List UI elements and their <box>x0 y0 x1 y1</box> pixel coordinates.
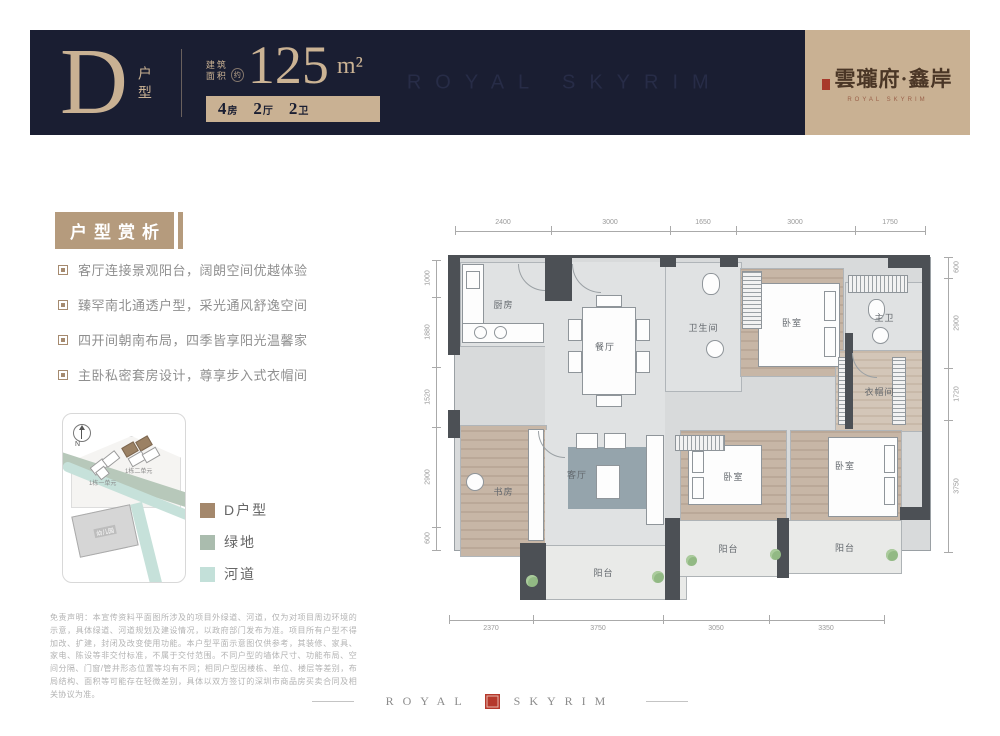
wall-top <box>455 255 930 258</box>
dining-chair <box>596 295 622 307</box>
square-bullet-icon <box>58 300 68 310</box>
dim-top-4: 3000 <box>787 219 803 226</box>
north-compass-icon <box>73 424 91 442</box>
wall-corner-br <box>900 507 930 520</box>
dim-right-2: 2900 <box>954 315 961 331</box>
wall-pillar <box>545 255 572 301</box>
dim-bottom-2: 3750 <box>590 625 606 632</box>
square-bullet-icon <box>58 265 68 275</box>
dim-left-2: 1880 <box>425 324 432 340</box>
bedroom-mid-closet <box>675 435 725 451</box>
analysis-title: 户型赏析 <box>55 212 174 249</box>
dining-chair <box>596 395 622 407</box>
legend-item-green: 绿地 <box>200 532 268 552</box>
bullet-item: 主卧私密套房设计，尊享步入式衣帽间 <box>58 365 368 384</box>
header: D 户型 建筑 面积 约 125 m² 4房 2厅 2卫 <box>30 30 970 135</box>
plant <box>770 549 781 560</box>
dim-line-right <box>948 257 949 552</box>
bath-sink <box>706 340 724 358</box>
legend-swatch-river <box>200 567 215 582</box>
area-label-line1: 建筑 <box>206 60 228 71</box>
area-value: 125 <box>248 43 329 89</box>
stove-burner <box>474 326 487 339</box>
pillow <box>692 451 704 473</box>
brand-logo-block: 雲瓏府·鑫岸 ROYAL SKYRIM <box>805 30 970 135</box>
pillow <box>884 477 895 505</box>
armchair <box>576 433 598 449</box>
sofa <box>646 435 664 525</box>
dim-bottom-3: 3050 <box>708 625 724 632</box>
legend-label-d: D户型 <box>224 500 268 520</box>
header-navy-band: D 户型 建筑 面积 约 125 m² 4房 2厅 2卫 <box>30 30 805 135</box>
disclaimer-text: 免责声明：本宣传资料平面图所涉及的项目外绿道、河道，仅为对项目周边环境的示意，具… <box>50 612 357 702</box>
footer-word-left: ROYAL <box>386 694 471 709</box>
kitchen-sink <box>466 271 480 289</box>
analysis-bullets: 客厅连接景观阳台，阔朗空间优越体验 臻罕南北通透户型，采光通风舒逸空间 四开间朝… <box>58 260 368 400</box>
dim-line-left <box>436 260 437 550</box>
wall-pillar <box>720 255 738 267</box>
dim-line-bottom <box>449 620 885 621</box>
north-label: N <box>75 441 80 448</box>
dim-bottom-4: 3350 <box>818 625 834 632</box>
balcony-right: 阳台 <box>788 520 902 574</box>
study-chair <box>466 473 484 491</box>
legend-label-green: 绿地 <box>224 532 256 552</box>
room-spec-bar: 4房 2厅 2卫 <box>206 96 380 122</box>
laundry-closet <box>848 275 908 293</box>
spec-baths-num: 2 <box>289 99 298 118</box>
bullet-item: 四开间朝南布局，四季皆享阳光温馨家 <box>58 330 368 349</box>
plant <box>686 555 697 566</box>
spec-halls-unit: 厅 <box>263 106 273 117</box>
legend-item-d: D户型 <box>200 500 268 520</box>
bullet-item: 客厅连接景观阳台，阔朗空间优越体验 <box>58 260 368 279</box>
legend-swatch-d <box>200 503 215 518</box>
stove-burner <box>494 326 507 339</box>
analysis-title-bar <box>178 212 183 249</box>
unit-type-letter: D <box>60 39 128 125</box>
pillow <box>824 291 836 321</box>
dim-right-3: 1720 <box>954 386 961 402</box>
plant <box>526 575 538 587</box>
footer-dash-right <box>646 701 688 702</box>
balcony-mid: 阳台 <box>670 520 787 577</box>
analysis-title-block: 户型赏析 <box>55 212 183 249</box>
square-bullet-icon <box>58 370 68 380</box>
wall-left-lower <box>448 410 460 438</box>
wall-balcony-left <box>520 543 546 600</box>
wall-balcony-divider <box>777 518 789 578</box>
pillow <box>692 477 704 499</box>
pillow <box>884 445 895 473</box>
header-watermark: ROYAL SKYRIM <box>407 71 723 94</box>
toilet <box>702 273 720 295</box>
dim-bottom-1: 2370 <box>483 625 499 632</box>
legend-item-river: 河道 <box>200 564 268 584</box>
map-legend: D户型 绿地 河道 <box>200 500 268 596</box>
header-divider <box>181 49 182 117</box>
pillow <box>824 327 836 357</box>
master-sink <box>872 327 889 344</box>
area-label-line2: 面积 <box>206 71 228 82</box>
floor-plan: 厨房 餐厅 卫生间 卧室 主卫 衣帽间 书房 客厅 卧室 卧室 阳台 阳台 阳台 <box>420 215 980 655</box>
spec-halls-num: 2 <box>253 99 262 118</box>
footer-seal-icon <box>485 694 500 709</box>
dim-right-1: 600 <box>954 261 961 273</box>
dim-top-1: 2400 <box>495 219 511 226</box>
armchair <box>604 433 626 449</box>
bullet-text: 主卧私密套房设计，尊享步入式衣帽间 <box>78 365 308 384</box>
site-plan-map: N 1栋一单元 1栋二单元 幼儿园 <box>62 413 186 583</box>
bullet-text: 臻罕南北通透户型，采光通风舒逸空间 <box>78 295 308 314</box>
brand-name-cn: 雲瓏府·鑫岸 <box>834 63 952 93</box>
legend-label-river: 河道 <box>224 564 256 584</box>
dim-top-5: 1750 <box>882 219 898 226</box>
dining-chair <box>636 319 650 341</box>
plant <box>886 549 898 561</box>
wall-balcony-divider <box>665 518 680 600</box>
dim-left-5: 600 <box>425 532 432 544</box>
spec-rooms-unit: 房 <box>227 106 237 117</box>
spec-rooms-num: 4 <box>218 99 227 118</box>
dining-chair <box>568 351 582 373</box>
plant <box>652 571 664 583</box>
footer: ROYAL SKYRIM <box>0 694 1000 709</box>
dim-left-4: 2900 <box>425 469 432 485</box>
dim-right-4: 3750 <box>954 478 961 494</box>
bedroom-top-closet <box>742 271 762 329</box>
area-label: 建筑 面积 <box>206 60 228 83</box>
building-label: 1栋一单元 <box>89 478 116 487</box>
area-approx-mark: 约 <box>231 68 244 82</box>
wall-right <box>922 259 930 509</box>
building-label: 1栋二单元 <box>125 466 152 475</box>
dim-top-3: 1650 <box>695 219 711 226</box>
square-bullet-icon <box>58 335 68 345</box>
bullet-text: 客厅连接景观阳台，阔朗空间优越体验 <box>78 260 308 279</box>
footer-dash-left <box>312 701 354 702</box>
unit-type-label: 户型 <box>135 66 155 104</box>
footer-word-right: SKYRIM <box>514 694 615 709</box>
wall-left <box>448 255 460 355</box>
school-building: 幼儿园 <box>71 504 138 558</box>
area-block: 建筑 面积 约 125 m² 4房 2厅 2卫 <box>206 43 380 123</box>
dim-left-1: 1000 <box>425 270 432 286</box>
wall-pillar <box>845 333 853 429</box>
dim-left-3: 1520 <box>425 389 432 405</box>
spec-baths-unit: 卫 <box>298 106 308 117</box>
school-label: 幼儿园 <box>93 524 116 537</box>
coffee-table <box>596 465 620 499</box>
brand-name-en: ROYAL SKYRIM <box>847 97 927 103</box>
bullet-text: 四开间朝南布局，四季皆享阳光温馨家 <box>78 330 308 349</box>
wall-pillar <box>660 255 676 267</box>
dim-top-2: 3000 <box>602 219 618 226</box>
bullet-item: 臻罕南北通透户型，采光通风舒逸空间 <box>58 295 368 314</box>
dining-chair <box>568 319 582 341</box>
floorplan-poster: D 户型 建筑 面积 约 125 m² 4房 2厅 2卫 <box>0 0 1000 736</box>
dining-chair <box>636 351 650 373</box>
brand-seal-icon <box>822 79 830 90</box>
legend-swatch-green <box>200 535 215 550</box>
